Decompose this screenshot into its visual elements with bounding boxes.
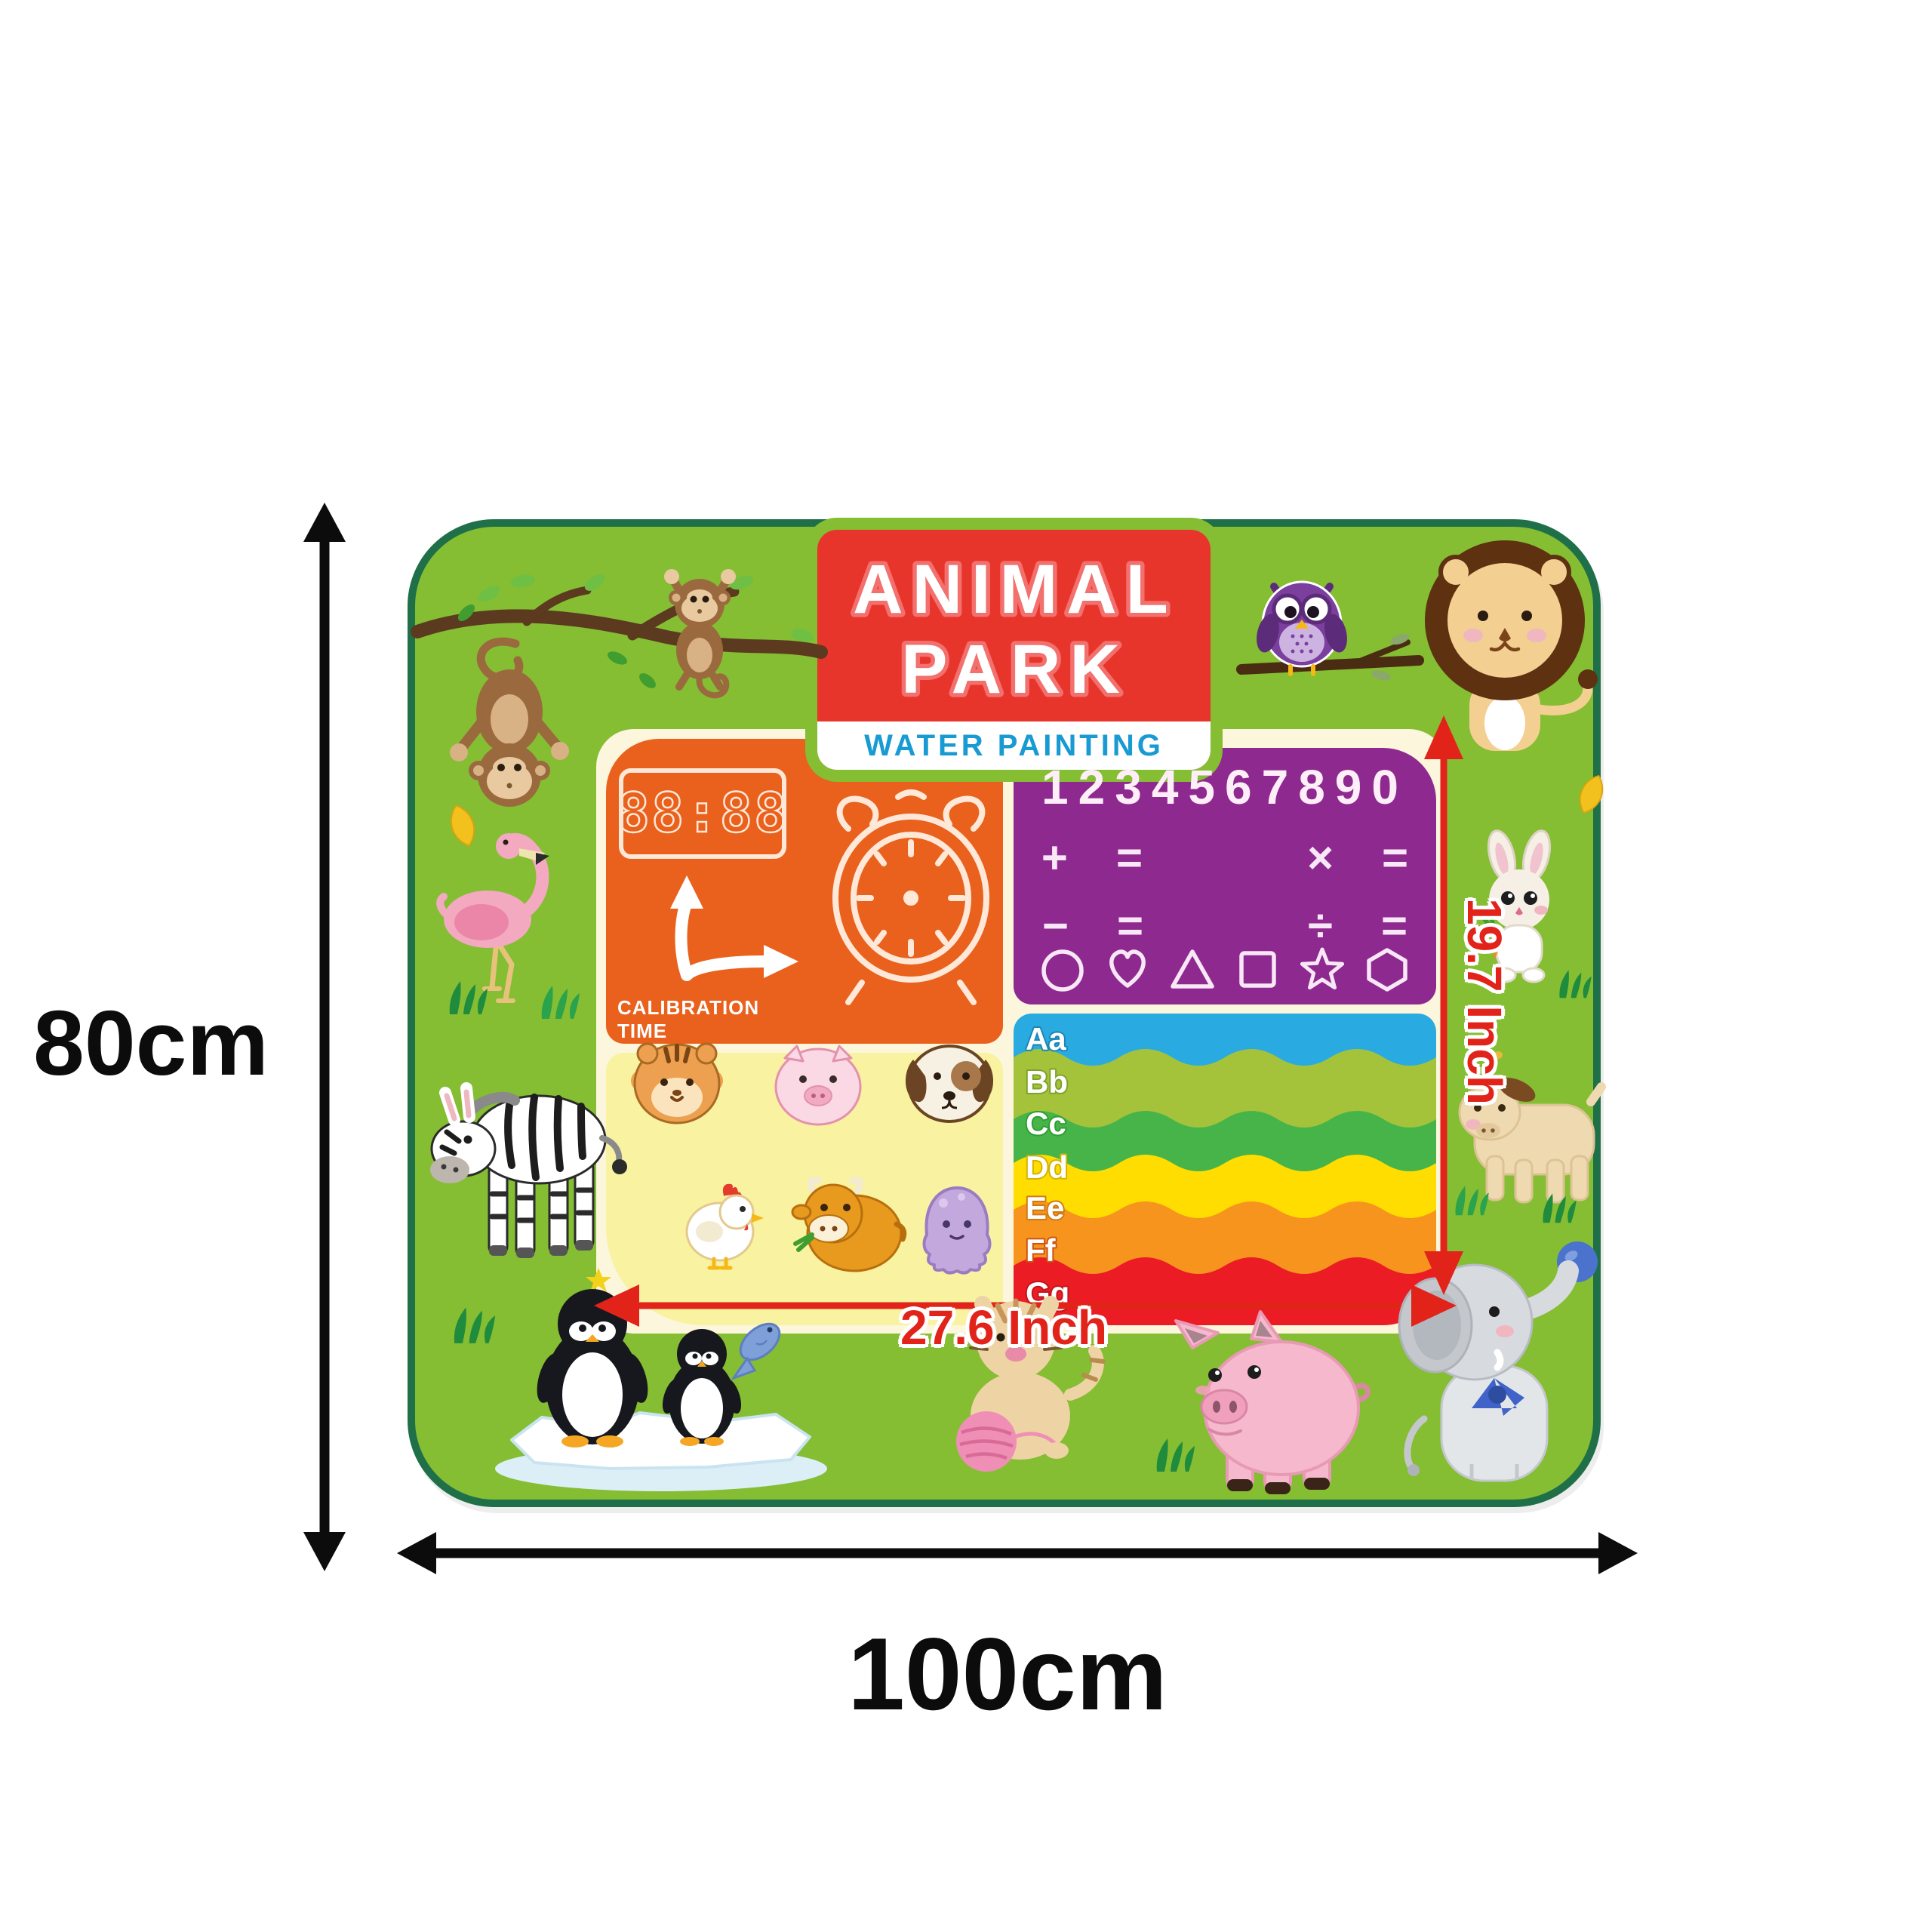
inner-height-label: 19.7 Inch	[1458, 884, 1511, 1118]
width-label: 100cm	[841, 1615, 1174, 1733]
product-dimension-illustration: Aa Bb Cc Dd Ee Ff Gg ANIMAL PARK WATER P…	[0, 0, 1932, 1932]
inner-width-label: 27.6 Inch	[845, 1300, 1162, 1355]
height-label: 80cm	[8, 990, 294, 1096]
